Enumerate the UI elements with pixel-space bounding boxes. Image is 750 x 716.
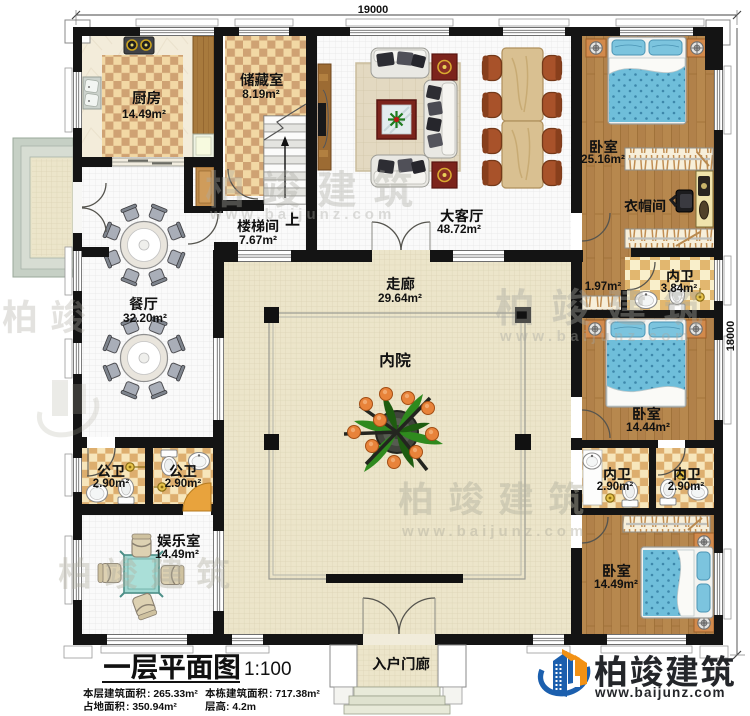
svg-text:32.20m²: 32.20m² — [123, 311, 167, 325]
svg-text:www.baijunz.com: www.baijunz.com — [209, 206, 395, 223]
svg-text:www.baijunz.com: www.baijunz.com — [401, 523, 587, 540]
svg-text:1.97m²: 1.97m² — [585, 281, 622, 293]
svg-text:: 265.33m²: : 265.33m² — [147, 689, 198, 700]
svg-text:14.49m²: 14.49m² — [155, 547, 199, 561]
svg-text:2.90m²: 2.90m² — [165, 478, 202, 490]
svg-text:14.49m²: 14.49m² — [122, 107, 166, 121]
svg-text:2.90m²: 2.90m² — [668, 481, 705, 493]
svg-text:: 350.94m²: : 350.94m² — [126, 702, 177, 713]
svg-text:18000: 18000 — [725, 321, 737, 352]
svg-text:7.67m²: 7.67m² — [239, 233, 277, 247]
svg-text:1:100: 1:100 — [244, 659, 292, 680]
svg-text:48.72m²: 48.72m² — [437, 222, 481, 236]
svg-text:: 717.38m²: : 717.38m² — [269, 689, 320, 700]
svg-text:3.84m²: 3.84m² — [661, 283, 698, 295]
svg-text:25.16m²: 25.16m² — [581, 152, 625, 166]
svg-text:www.baijunz.com: www.baijunz.com — [594, 685, 726, 700]
svg-text:2.90m²: 2.90m² — [93, 478, 130, 490]
svg-text:www.baijunz.com: www.baijunz.com — [499, 328, 693, 345]
svg-text:29.64m²: 29.64m² — [378, 291, 422, 305]
svg-text:8.19m²: 8.19m² — [242, 87, 279, 101]
svg-text:14.49m²: 14.49m² — [594, 577, 638, 591]
svg-text:: 4.2m: : 4.2m — [226, 702, 256, 713]
svg-text:2.90m²: 2.90m² — [597, 481, 634, 493]
svg-text:14.44m²: 14.44m² — [626, 420, 670, 434]
svg-text:19000: 19000 — [358, 4, 389, 16]
